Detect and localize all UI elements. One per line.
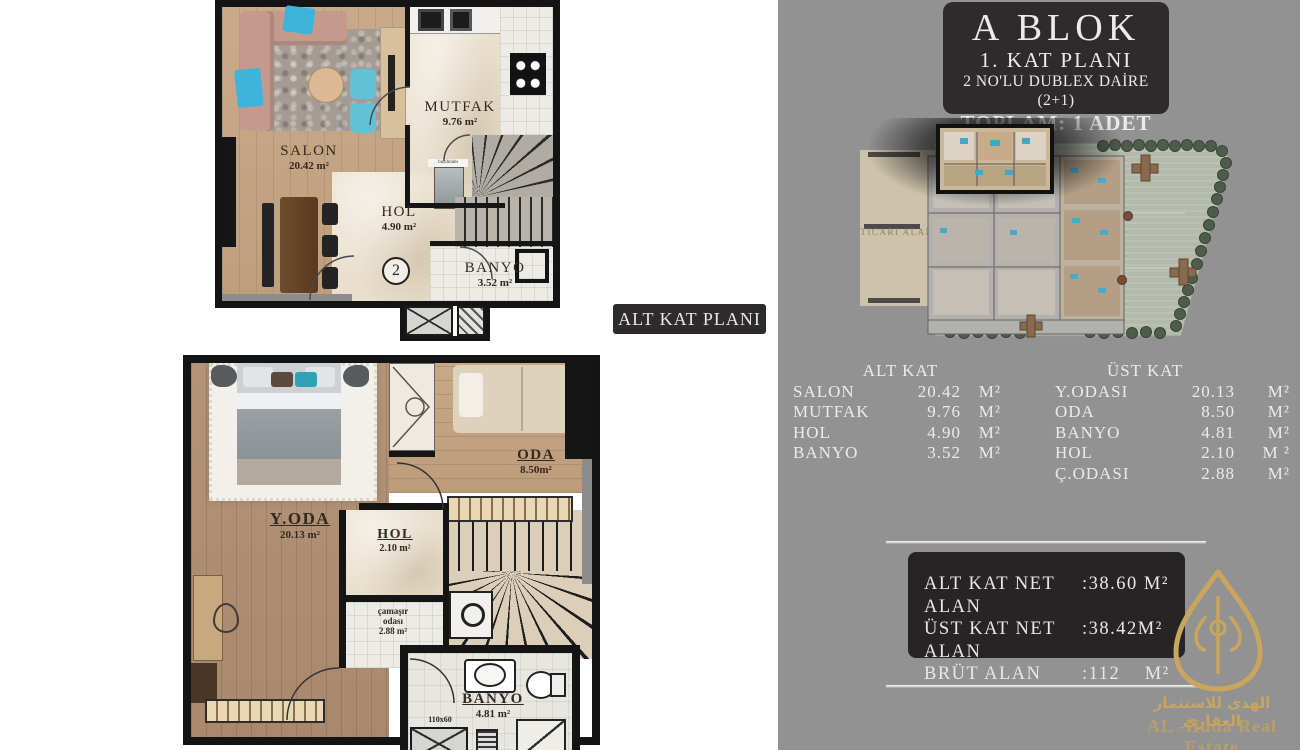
mutfak-label: MUTFAK 9.76 m² (400, 99, 520, 128)
net-row: BRÜT ALAN :112 M² (924, 663, 1185, 686)
table-row: Ç.ODASI 2.88 M² (1020, 464, 1270, 485)
banyo-label: BANYO 3.52 m² (435, 260, 555, 289)
shower-size-label: 110x60 (414, 715, 466, 725)
ust-kat-header: ÜST KAT (1020, 361, 1270, 382)
divider-line (886, 541, 1206, 544)
block-title: A BLOK (943, 8, 1169, 48)
hol-label: HOL 4.90 m² (339, 204, 459, 233)
site-key-plan: TICARI ALAN (840, 118, 1300, 353)
table-row: BANYO 3.52 M² (793, 443, 1008, 464)
floor-title: 1. KAT PLANI (943, 48, 1169, 72)
al-huda-logo-icon (1158, 570, 1278, 692)
elevator-annex (400, 301, 490, 341)
logo-english-text: AL -Huda Real Estate (1124, 716, 1300, 750)
elevator-shaft (405, 306, 453, 336)
shower-cabin (516, 719, 566, 750)
alt-kat-header: ALT KAT (793, 361, 1008, 382)
oda-label: ODA 8.50m² (479, 447, 593, 476)
service-shaft (457, 306, 485, 336)
unit-number-badge: 2 (382, 257, 410, 285)
unit-title: 2 NO'LU DUBLEX DAİRE (2+1) (943, 72, 1169, 110)
title-box: A BLOK 1. KAT PLANI 2 NO'LU DUBLEX DAİRE… (943, 2, 1169, 114)
alt-kat-plani-tag: ALT KAT PLANI (613, 304, 766, 334)
door-arc (408, 653, 468, 713)
table-row: ODA 8.50 M² (1020, 402, 1270, 423)
alt-kat-floor-plan: buzdolabı SALON (215, 0, 560, 341)
hol-label: HOL 2.10 m² (349, 527, 441, 554)
toilet-tank (550, 673, 566, 697)
table-row: HOL 2.10 M ² (1020, 443, 1270, 464)
plan-outer-walls: buzdolabı SALON (215, 0, 560, 308)
salon-label: SALON 20.42 m² (249, 143, 369, 172)
table-row: SALON 20.42 M² (793, 382, 1008, 403)
brochure-page: A BLOK 1. KAT PLANI 2 NO'LU DUBLEX DAİRE… (0, 0, 1300, 750)
table-row: Y.ODASI 20.13 M² (1020, 382, 1270, 403)
highlighted-unit (938, 126, 1052, 192)
table-row: MUTFAK 9.76 M² (793, 402, 1008, 423)
camasir-label: çamaşır odası 2.88 m² (345, 606, 441, 636)
shower-tray (410, 727, 468, 750)
ust-kat-table: ÜST KAT Y.ODASI 20.13 M² ODA 8.50 M² BAN… (1020, 361, 1270, 484)
table-row: BANYO 4.81 M² (1020, 423, 1270, 444)
table-row: HOL 4.90 M² (793, 423, 1008, 444)
net-row: ALT KAT NET ALAN :38.60 M² (924, 573, 1185, 618)
alt-kat-table: ALT KAT SALON 20.42 M² MUTFAK 9.76 M² HO… (793, 361, 1008, 464)
washbasin-bowl (474, 663, 506, 687)
ust-kat-floor-plan: Y.ODA 20.13 m² ODA 8.50m² HOL 2.10 m² ça… (183, 355, 603, 750)
room-banyo-annex: BANYO 4.81 m² 110x60 (400, 645, 580, 750)
y-oda-label: Y.ODA 20.13 m² (240, 509, 360, 541)
wc-fixture (476, 729, 498, 750)
net-row: ÜST KAT NET ALAN :38.42M² (924, 618, 1185, 663)
net-area-box: ALT KAT NET ALAN :38.60 M² ÜST KAT NET A… (908, 552, 1185, 658)
ticari-alan-label: TICARI ALAN (860, 227, 933, 237)
